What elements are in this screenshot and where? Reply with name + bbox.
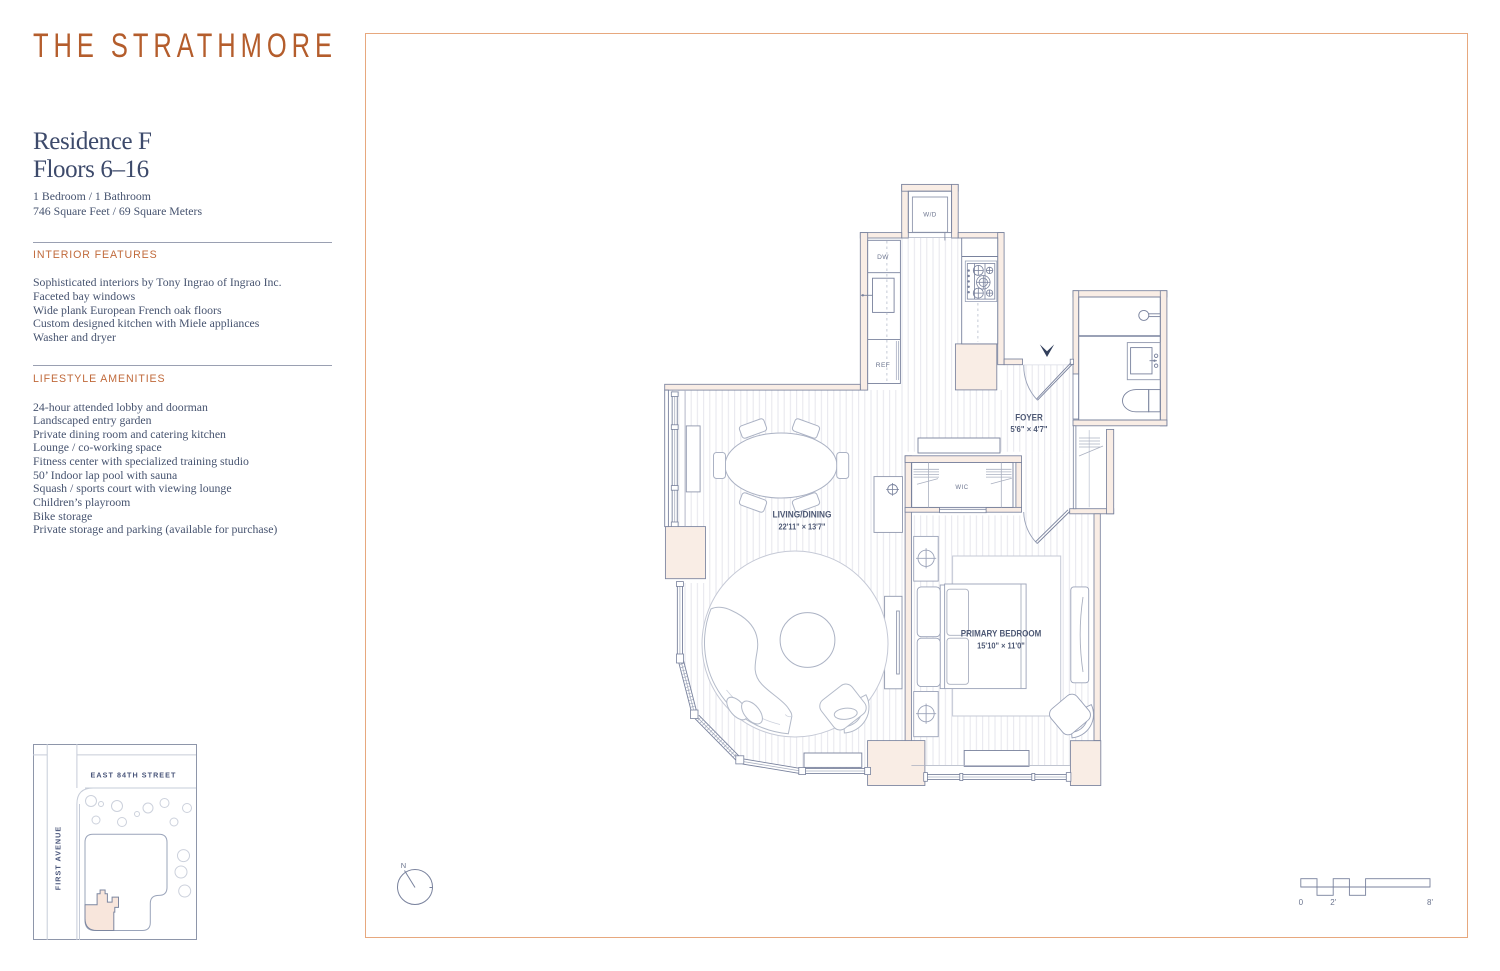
- svg-text:0: 0: [1299, 898, 1304, 907]
- svg-text:15'10" × 11'0": 15'10" × 11'0": [977, 642, 1025, 651]
- svg-text:2': 2': [1330, 898, 1336, 907]
- svg-text:WIC: WIC: [955, 485, 968, 491]
- svg-text:N: N: [401, 861, 406, 870]
- svg-text:PRIMARY BEDROOM: PRIMARY BEDROOM: [961, 629, 1042, 639]
- svg-text:W/D: W/D: [923, 212, 936, 219]
- svg-text:LIVING/DINING: LIVING/DINING: [773, 510, 832, 520]
- svg-text:DW: DW: [877, 254, 889, 261]
- svg-text:8': 8': [1427, 898, 1433, 907]
- svg-text:FOYER: FOYER: [1015, 412, 1043, 422]
- svg-text:22'11" × 13'7": 22'11" × 13'7": [779, 523, 826, 532]
- svg-text:5'6" × 4'7": 5'6" × 4'7": [1010, 425, 1047, 434]
- svg-text:REF: REF: [876, 362, 890, 369]
